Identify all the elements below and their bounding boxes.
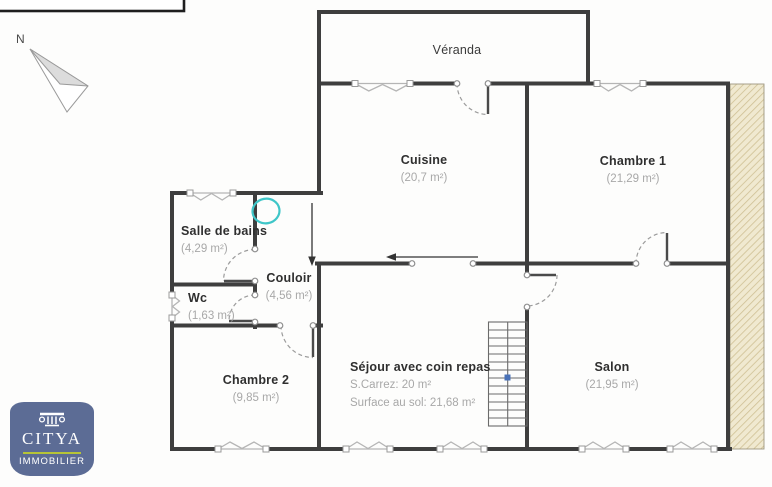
room-label-salon: Salon (21,95 m²) xyxy=(585,359,638,393)
logo-brand: CITYA xyxy=(22,429,82,449)
citya-logo: CITYA IMMOBILIER xyxy=(10,402,94,476)
room-label-veranda: Véranda xyxy=(433,42,482,58)
column-capital-icon xyxy=(37,412,67,428)
logo-divider xyxy=(23,452,81,454)
room-label-cuisine: Cuisine (20,7 m²) xyxy=(401,152,448,186)
stair-marker xyxy=(505,375,511,381)
compass-north-label: N xyxy=(16,32,25,46)
floor-plan-drawing xyxy=(0,0,772,487)
room-label-couloir: Couloir (4,56 m²) xyxy=(266,270,313,304)
hatch-strip xyxy=(730,84,764,449)
room-label-chambre2: Chambre 2 (9,85 m²) xyxy=(223,372,289,406)
door-symbols xyxy=(224,81,670,358)
room-label-chambre1: Chambre 1 (21,29 m²) xyxy=(600,153,666,187)
staircase xyxy=(489,322,528,426)
circulation-arrow-down xyxy=(308,203,316,266)
room-label-salle-de-bains: Salle de bains (4,29 m²) xyxy=(181,223,267,257)
cut-off-frame xyxy=(0,0,184,11)
room-label-sejour: Séjour avec coin repas S.Carrez: 20 m² S… xyxy=(350,359,491,411)
logo-tagline: IMMOBILIER xyxy=(19,456,85,467)
compass-arrow-icon xyxy=(30,49,88,112)
room-label-wc: Wc (1,63 m²) xyxy=(188,290,235,324)
floor-plan-page: N Véranda Cuisine (20,7 m²) Chambre 1 (2… xyxy=(0,0,772,487)
circulation-arrow-left xyxy=(386,253,478,261)
